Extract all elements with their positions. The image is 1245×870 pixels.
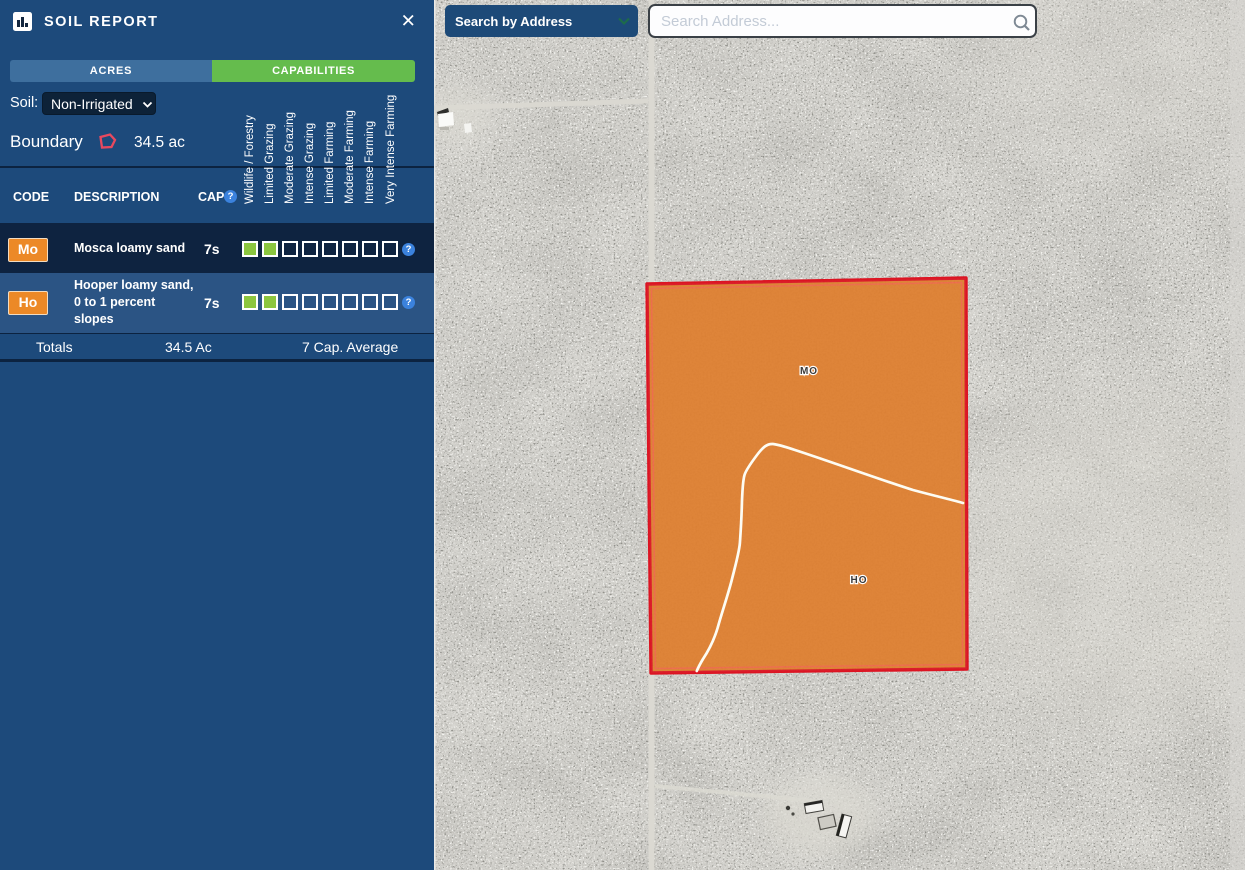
svg-text:MO: MO: [800, 366, 818, 377]
svg-text:HO: HO: [851, 575, 868, 586]
